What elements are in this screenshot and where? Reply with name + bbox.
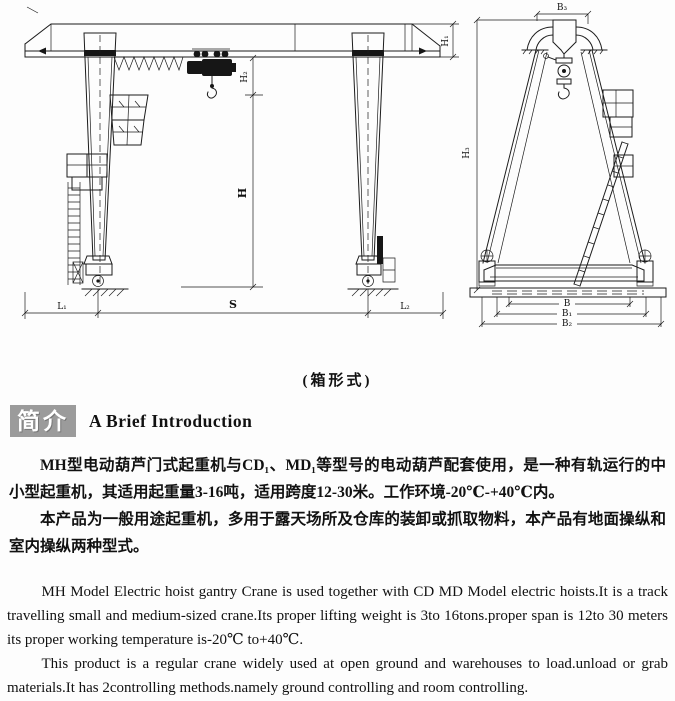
chinese-text-block: MH型电动葫芦门式起重机与CD₁、MD₁等型号的电动葫芦配套使用，是一种有轨运行… bbox=[9, 452, 666, 560]
section-heading: 简介 A Brief Introduction bbox=[10, 404, 675, 438]
dim-label-h1: H₁ bbox=[441, 35, 451, 46]
side-cabinets bbox=[603, 90, 633, 177]
dim-label-l1: L₁ bbox=[57, 302, 67, 312]
dim-label-s: S bbox=[229, 298, 237, 311]
dim-label-b3: B₃ bbox=[557, 3, 568, 13]
left-leg bbox=[73, 33, 128, 318]
right-leg bbox=[348, 33, 398, 318]
zh-paragraph-2: 本产品为一般用途起重机，多用于露天场所及仓库的装卸或抓取物料，本产品有地面操纵和… bbox=[9, 506, 666, 560]
en-paragraph-2: This product is a regular crane widely u… bbox=[7, 652, 668, 700]
dim-label-h2: H₂ bbox=[240, 71, 250, 83]
dim-label-b2: B₂ bbox=[562, 319, 573, 329]
dim-label-b1: B₁ bbox=[562, 309, 572, 319]
access-ladder bbox=[68, 182, 80, 285]
side-view-drawing: B₃ H₃ B B₁ B₂ bbox=[462, 3, 666, 329]
dim-label-h: H bbox=[236, 188, 249, 198]
dim-label-h3: H₃ bbox=[462, 147, 472, 159]
intro-heading-en: A Brief Introduction bbox=[89, 411, 252, 432]
english-text-block: MH Model Electric hoist gantry Crane is … bbox=[7, 580, 668, 700]
front-view-drawing: H₁ H₂ H L₁ S L₂ bbox=[22, 7, 459, 319]
festoon-cable bbox=[114, 57, 183, 70]
drawing-caption: (箱形式) bbox=[0, 369, 675, 390]
hook-assembly bbox=[544, 54, 573, 99]
en-paragraph-1: MH Model Electric hoist gantry Crane is … bbox=[7, 580, 668, 652]
document-page: H₁ H₂ H L₁ S L₂ bbox=[0, 0, 675, 701]
front-view-dimensions: H₁ H₂ H L₁ S L₂ bbox=[22, 21, 459, 319]
zh-paragraph-1: MH型电动葫芦门式起重机与CD₁、MD₁等型号的电动葫芦配套使用，是一种有轨运行… bbox=[9, 452, 666, 506]
hoist-trolley bbox=[187, 49, 236, 98]
dim-label-b: B bbox=[564, 299, 571, 309]
girder bbox=[25, 7, 440, 57]
crane-technical-drawing: H₁ H₂ H L₁ S L₂ bbox=[0, 0, 675, 345]
dim-label-l2: L₂ bbox=[400, 302, 410, 312]
intro-badge-zh: 简介 bbox=[10, 405, 76, 437]
a-frame-legs bbox=[483, 50, 645, 263]
a-frame-top-yoke bbox=[522, 20, 607, 54]
electrical-cabinets bbox=[67, 95, 148, 190]
